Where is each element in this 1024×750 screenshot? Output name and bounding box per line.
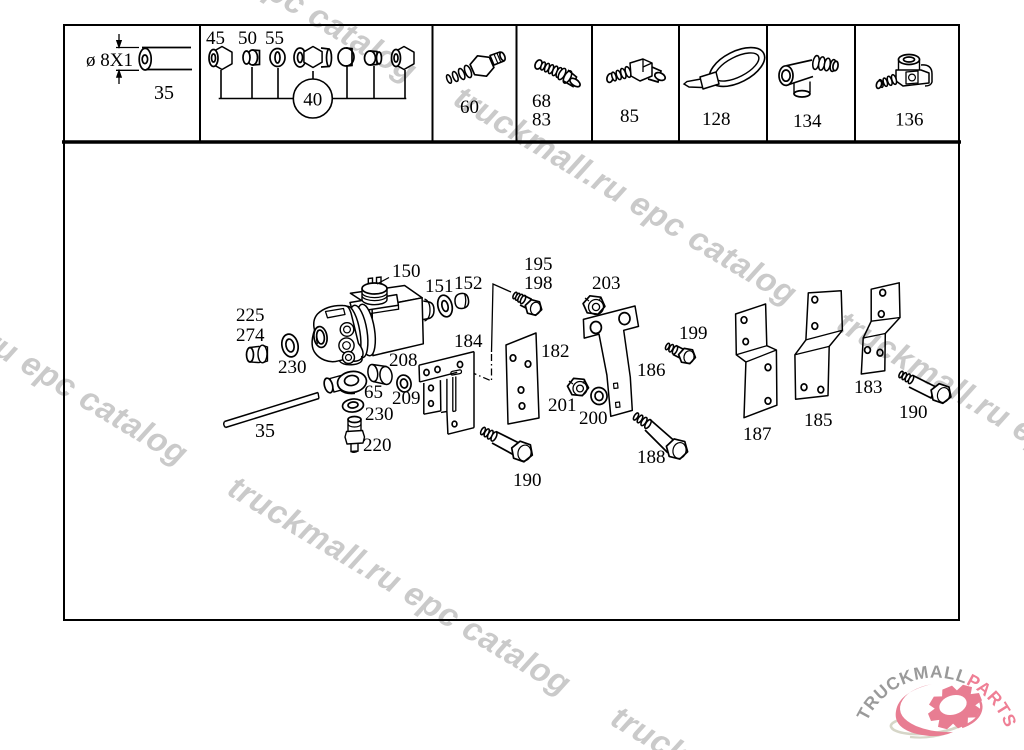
svg-text:185: 185 bbox=[804, 410, 833, 431]
svg-text:195: 195 bbox=[524, 254, 553, 275]
svg-text:151: 151 bbox=[425, 276, 454, 297]
svg-text:201: 201 bbox=[548, 395, 577, 416]
svg-text:150: 150 bbox=[392, 261, 421, 282]
svg-text:ø 8X1: ø 8X1 bbox=[86, 50, 133, 71]
svg-text:183: 183 bbox=[854, 377, 883, 398]
svg-text:128: 128 bbox=[702, 109, 731, 130]
svg-text:134: 134 bbox=[793, 111, 822, 132]
svg-text:190: 190 bbox=[513, 470, 542, 491]
svg-text:40: 40 bbox=[303, 90, 322, 111]
svg-text:208: 208 bbox=[389, 350, 418, 371]
svg-text:203: 203 bbox=[592, 273, 621, 294]
svg-text:184: 184 bbox=[454, 331, 483, 352]
svg-text:35: 35 bbox=[154, 82, 174, 104]
svg-text:65: 65 bbox=[364, 382, 383, 403]
svg-text:50: 50 bbox=[238, 28, 257, 49]
svg-text:55: 55 bbox=[265, 28, 284, 49]
svg-text:60: 60 bbox=[460, 97, 479, 118]
svg-text:188: 188 bbox=[637, 447, 666, 468]
svg-text:35: 35 bbox=[255, 420, 275, 442]
svg-text:85: 85 bbox=[620, 106, 639, 127]
svg-text:198: 198 bbox=[524, 273, 553, 294]
svg-text:225: 225 bbox=[236, 305, 265, 326]
svg-text:83: 83 bbox=[532, 110, 551, 131]
svg-text:199: 199 bbox=[679, 323, 708, 344]
svg-text:136: 136 bbox=[895, 110, 924, 131]
svg-text:209: 209 bbox=[392, 388, 421, 409]
svg-text:230: 230 bbox=[365, 404, 394, 425]
svg-text:187: 187 bbox=[743, 424, 772, 445]
svg-text:200: 200 bbox=[579, 408, 608, 429]
svg-text:190: 190 bbox=[899, 402, 928, 423]
svg-text:230: 230 bbox=[278, 357, 307, 378]
svg-text:220: 220 bbox=[363, 435, 392, 456]
svg-text:186: 186 bbox=[637, 360, 666, 381]
svg-text:274: 274 bbox=[236, 325, 265, 346]
svg-text:152: 152 bbox=[454, 273, 483, 294]
svg-text:182: 182 bbox=[541, 341, 570, 362]
